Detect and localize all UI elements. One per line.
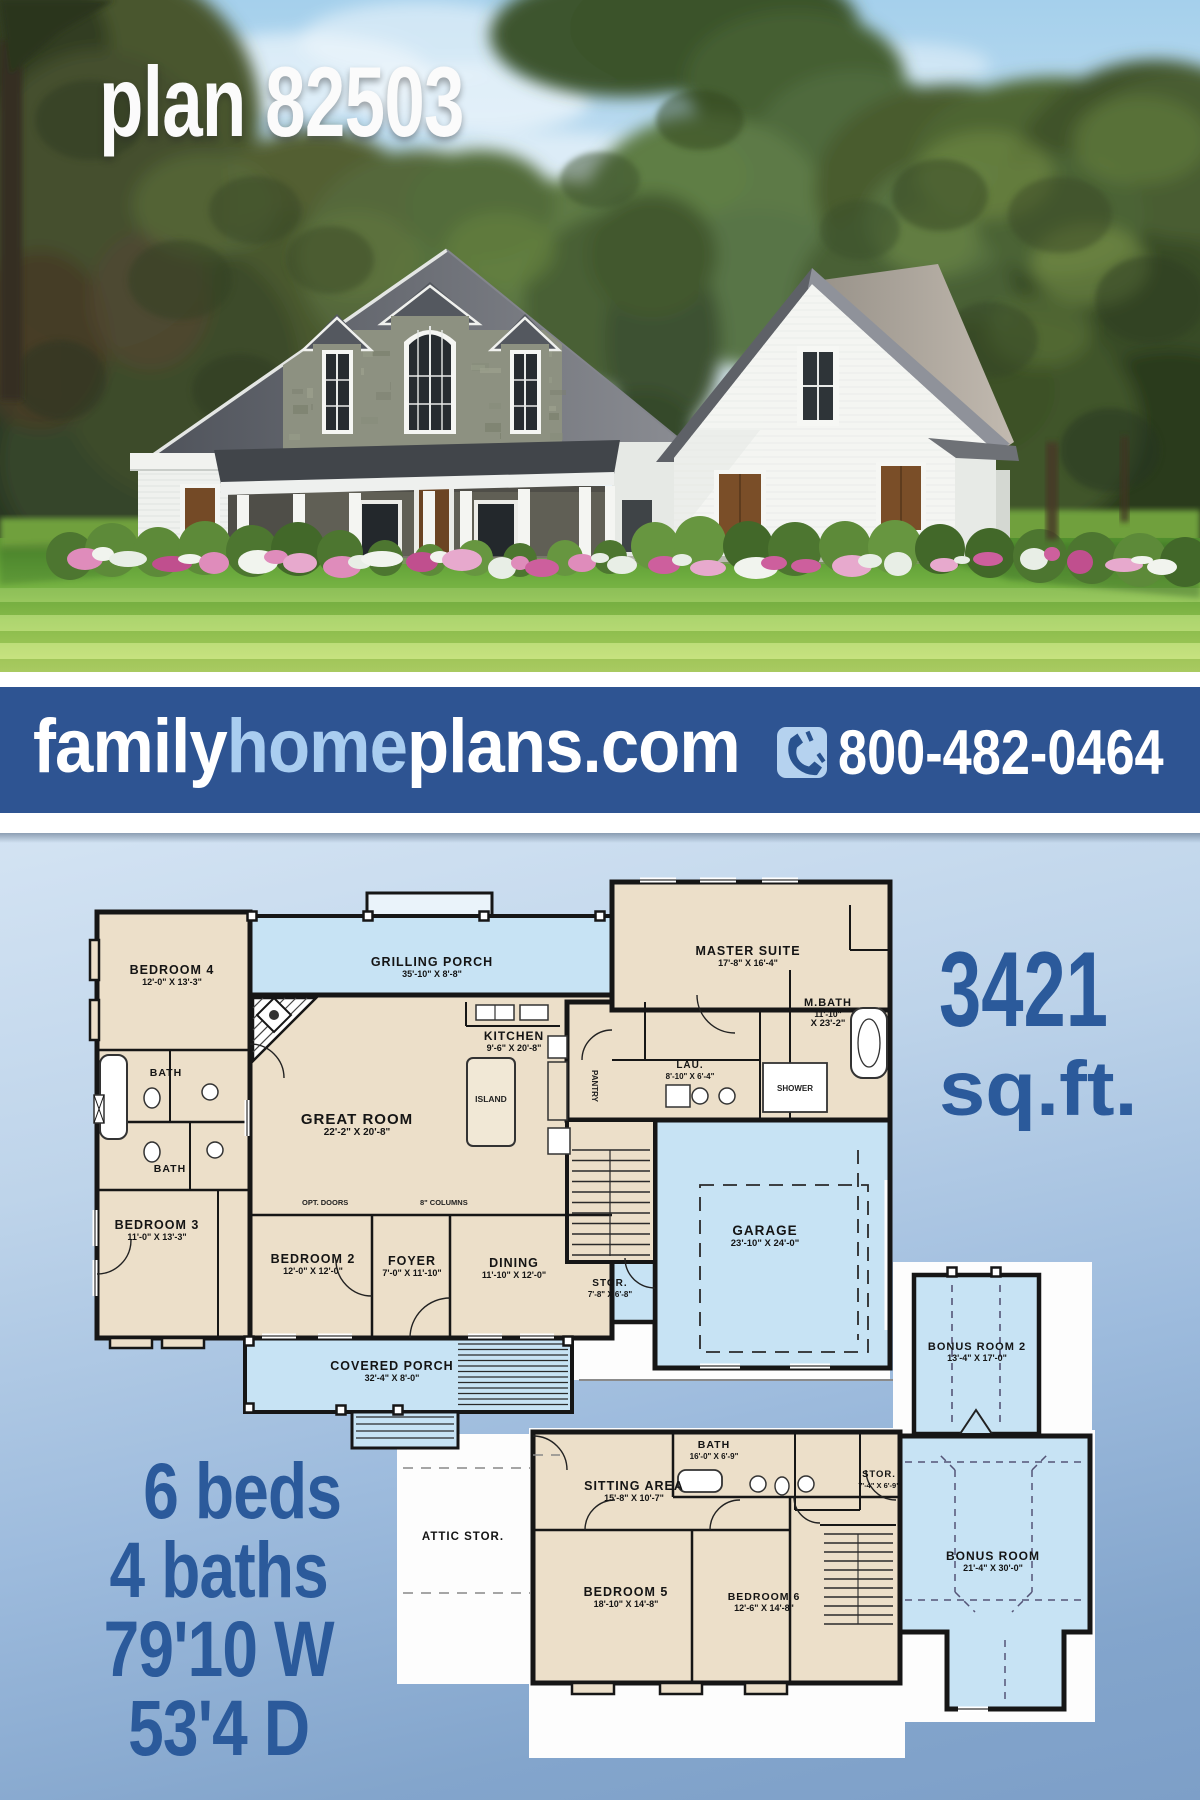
svg-text:32'-4" X 8'-0": 32'-4" X 8'-0" xyxy=(365,1373,420,1383)
svg-text:9'-6" X 20'-8": 9'-6" X 20'-8" xyxy=(487,1043,542,1053)
svg-text:15'-8" X 10'-7": 15'-8" X 10'-7" xyxy=(604,1493,664,1503)
svg-text:BONUS ROOM: BONUS ROOM xyxy=(946,1549,1040,1563)
svg-text:GREAT ROOM: GREAT ROOM xyxy=(301,1111,413,1128)
svg-text:STOR.: STOR. xyxy=(592,1278,627,1289)
svg-text:MASTER SUITE: MASTER SUITE xyxy=(695,944,800,958)
svg-text:BATH: BATH xyxy=(698,1439,730,1451)
svg-text:23'-10" X 24'-0": 23'-10" X 24'-0" xyxy=(731,1238,799,1249)
svg-text:SHOWER: SHOWER xyxy=(777,1084,813,1093)
svg-text:8" COLUMNS: 8" COLUMNS xyxy=(420,1198,468,1207)
svg-text:8'-10" X 6'-4": 8'-10" X 6'-4" xyxy=(666,1072,715,1081)
svg-text:KITCHEN: KITCHEN xyxy=(484,1029,544,1043)
svg-text:FOYER: FOYER xyxy=(388,1254,436,1268)
svg-text:COVERED PORCH: COVERED PORCH xyxy=(330,1359,453,1373)
svg-text:17'-8" X 16'-4": 17'-8" X 16'-4" xyxy=(718,958,778,968)
svg-text:12'-0" X 13'-3": 12'-0" X 13'-3" xyxy=(142,977,202,987)
svg-text:11'-10" X 12'-0": 11'-10" X 12'-0" xyxy=(482,1270,546,1280)
svg-text:STOR.: STOR. xyxy=(862,1469,896,1480)
svg-text:X 23'-2": X 23'-2" xyxy=(811,1018,846,1029)
svg-text:M.BATH: M.BATH xyxy=(804,997,852,1009)
svg-text:BONUS ROOM 2: BONUS ROOM 2 xyxy=(928,1341,1026,1353)
svg-text:BEDROOM 5: BEDROOM 5 xyxy=(584,1585,669,1599)
svg-text:22'-2" X 20'-8": 22'-2" X 20'-8" xyxy=(324,1127,391,1138)
svg-text:OPT. DOORS: OPT. DOORS xyxy=(302,1198,348,1207)
svg-text:GARAGE: GARAGE xyxy=(732,1223,797,1238)
svg-text:7'-8" X 6'-8": 7'-8" X 6'-8" xyxy=(588,1290,633,1299)
svg-text:11'-0" X 13'-3": 11'-0" X 13'-3" xyxy=(127,1232,186,1242)
svg-text:7'-0" X 11'-10": 7'-0" X 11'-10" xyxy=(382,1268,441,1278)
svg-text:21'-4" X 30'-0": 21'-4" X 30'-0" xyxy=(963,1563,1023,1573)
svg-text:12'-0" X 12'-0": 12'-0" X 12'-0" xyxy=(283,1266,343,1276)
svg-text:BATH: BATH xyxy=(150,1067,182,1079)
svg-text:LAU.: LAU. xyxy=(676,1060,703,1071)
svg-text:35'-10" X 8'-8": 35'-10" X 8'-8" xyxy=(402,969,462,979)
svg-text:16'-0" X 6'-9": 16'-0" X 6'-9" xyxy=(690,1452,739,1461)
svg-text:BEDROOM 6: BEDROOM 6 xyxy=(728,1591,801,1603)
svg-text:GRILLING PORCH: GRILLING PORCH xyxy=(371,955,493,969)
svg-text:BATH: BATH xyxy=(154,1163,186,1175)
svg-text:13'-4" X 17'-0": 13'-4" X 17'-0" xyxy=(947,1353,1007,1363)
svg-text:DINING: DINING xyxy=(489,1256,539,1270)
svg-text:BEDROOM 4: BEDROOM 4 xyxy=(130,963,215,977)
svg-text:7'-4" X 6'-9": 7'-4" X 6'-9" xyxy=(858,1481,900,1490)
svg-text:18'-10" X 14'-8": 18'-10" X 14'-8" xyxy=(594,1599,659,1609)
svg-text:BEDROOM 3: BEDROOM 3 xyxy=(115,1218,200,1232)
svg-text:SITTING AREA: SITTING AREA xyxy=(584,1479,684,1493)
svg-text:ISLAND: ISLAND xyxy=(475,1094,507,1104)
svg-text:BEDROOM 2: BEDROOM 2 xyxy=(271,1252,356,1266)
svg-text:ATTIC STOR.: ATTIC STOR. xyxy=(422,1531,504,1543)
svg-text:12'-6" X 14'-8": 12'-6" X 14'-8" xyxy=(734,1603,794,1613)
svg-text:PANTRY: PANTRY xyxy=(590,1070,599,1103)
